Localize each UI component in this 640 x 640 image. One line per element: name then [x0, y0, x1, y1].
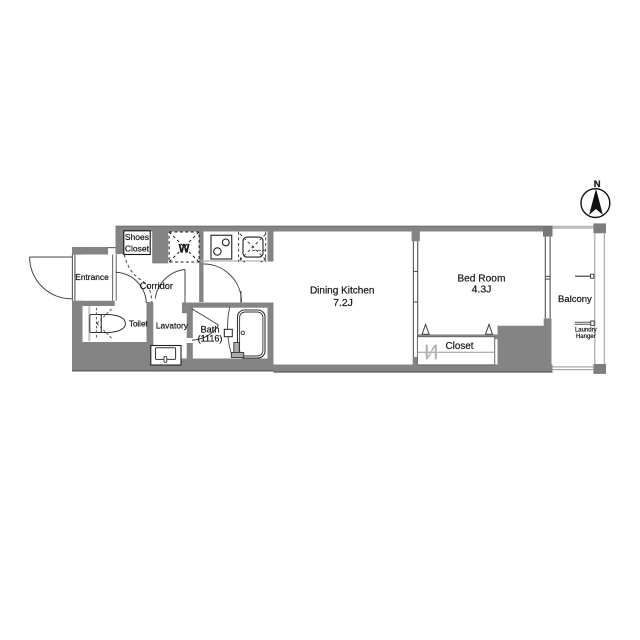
- svg-text:W: W: [179, 243, 190, 255]
- svg-text:Corridor: Corridor: [140, 281, 173, 291]
- svg-text:Hanger: Hanger: [576, 334, 596, 340]
- svg-text:N: N: [594, 179, 601, 190]
- svg-text:7.2J: 7.2J: [333, 297, 353, 309]
- svg-text:Closet: Closet: [446, 341, 474, 352]
- svg-text:Balcony: Balcony: [558, 294, 592, 305]
- svg-text:Lavatory: Lavatory: [156, 321, 189, 331]
- svg-text:Laundry: Laundry: [575, 328, 597, 334]
- svg-text:Toilet: Toilet: [129, 320, 148, 329]
- svg-text:Bed Room: Bed Room: [457, 273, 505, 284]
- svg-text:Closet: Closet: [125, 243, 150, 253]
- svg-text:Dining Kitchen: Dining Kitchen: [310, 286, 374, 297]
- svg-text:Shoes: Shoes: [125, 232, 149, 242]
- svg-text:4.3J: 4.3J: [472, 285, 492, 296]
- svg-text:Entrance: Entrance: [75, 272, 109, 282]
- svg-text:(1116): (1116): [198, 334, 223, 344]
